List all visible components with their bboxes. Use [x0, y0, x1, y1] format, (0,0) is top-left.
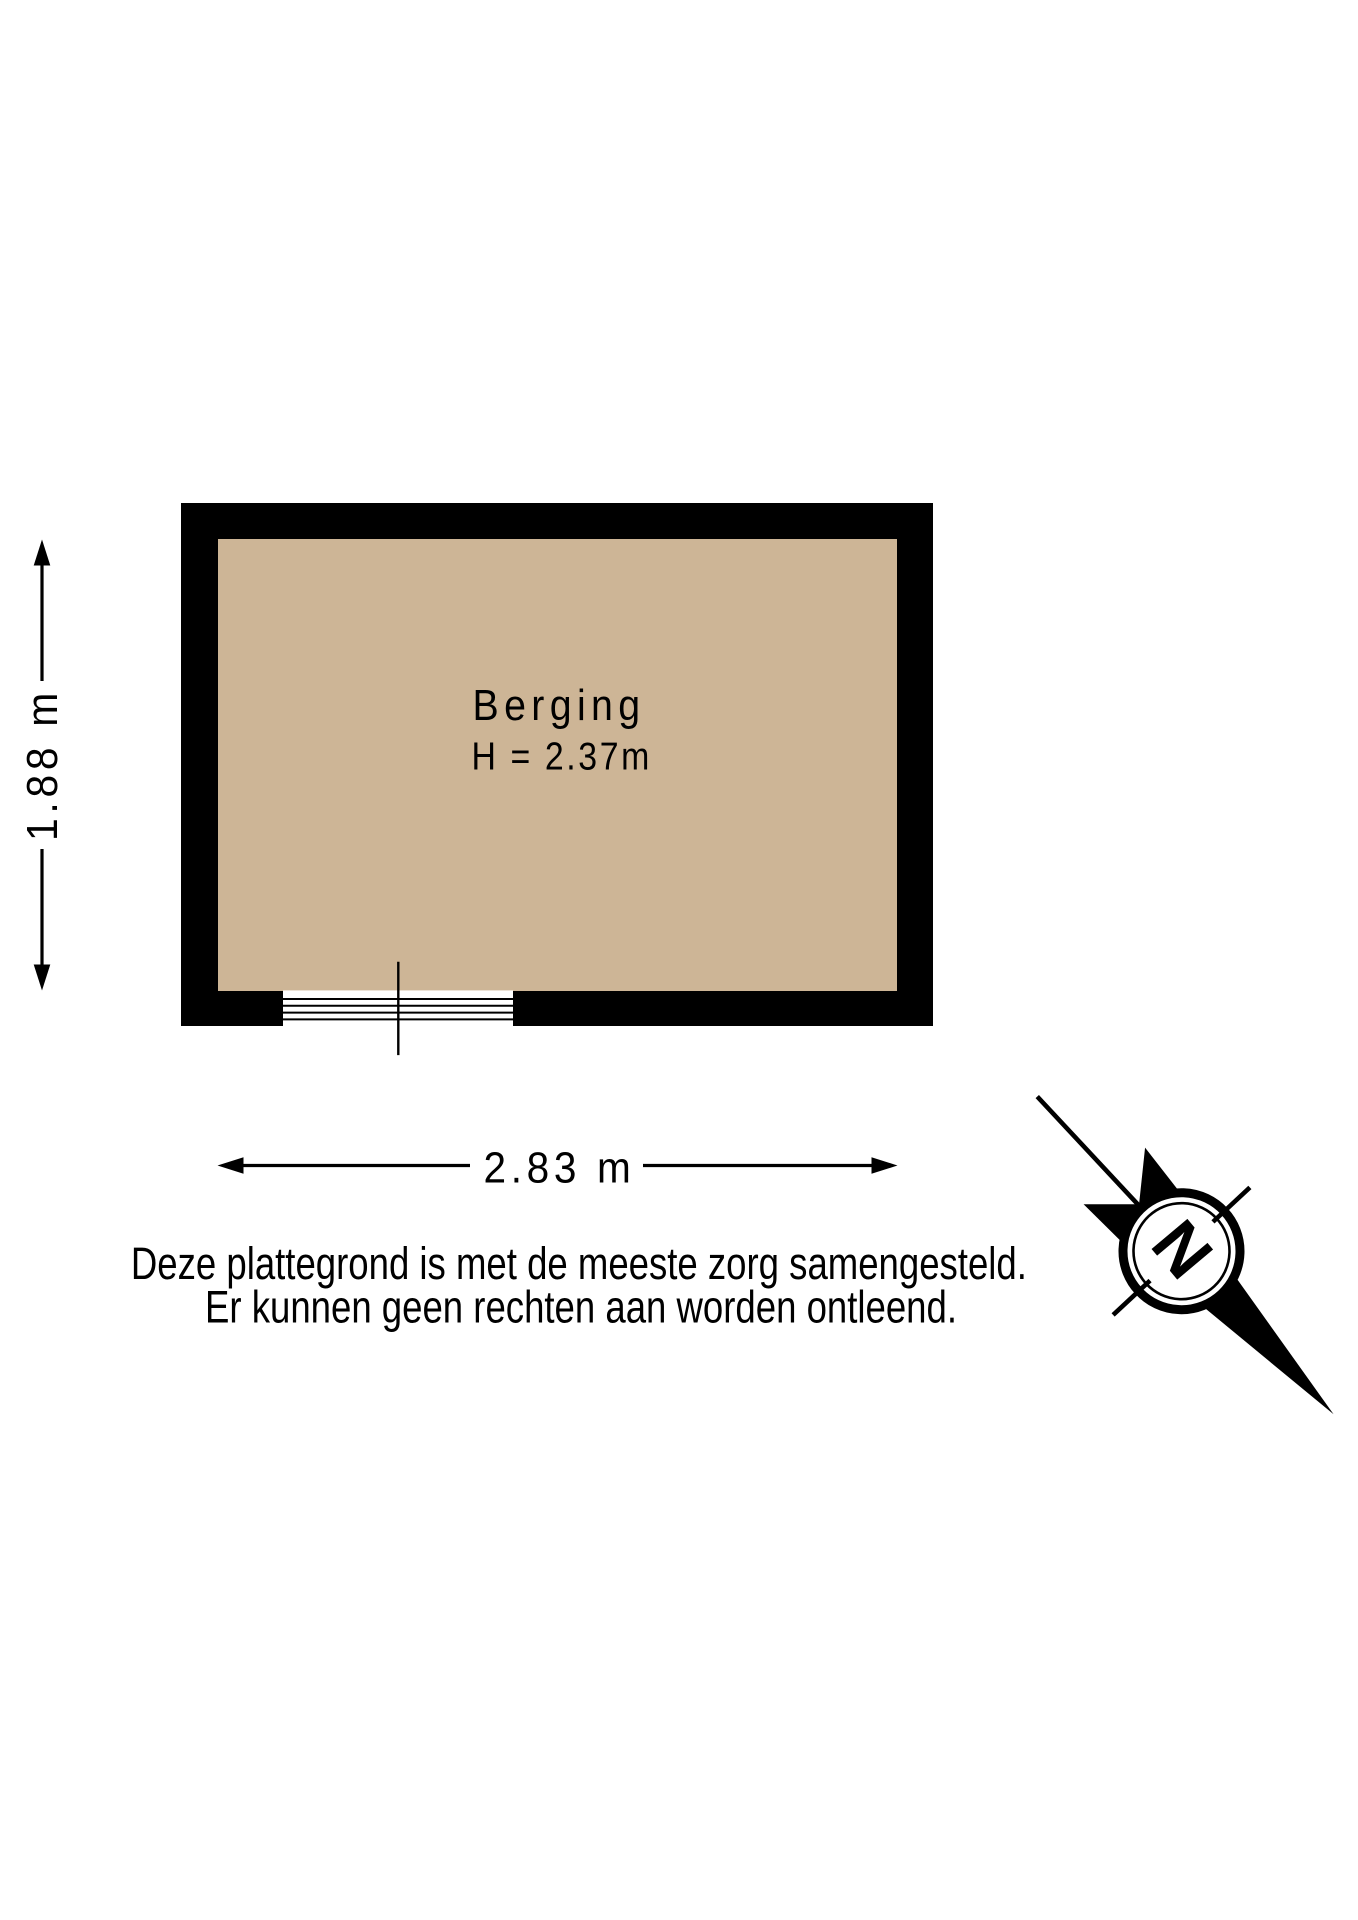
svg-text:1.88 m: 1.88 m: [19, 688, 67, 841]
svg-text:H = 2.37m: H = 2.37m: [471, 736, 652, 779]
svg-text:2.83 m: 2.83 m: [484, 1145, 636, 1193]
svg-text:Er kunnen geen rechten aan wor: Er kunnen geen rechten aan worden ontlee…: [205, 1281, 957, 1332]
svg-text:Berging: Berging: [473, 681, 646, 730]
